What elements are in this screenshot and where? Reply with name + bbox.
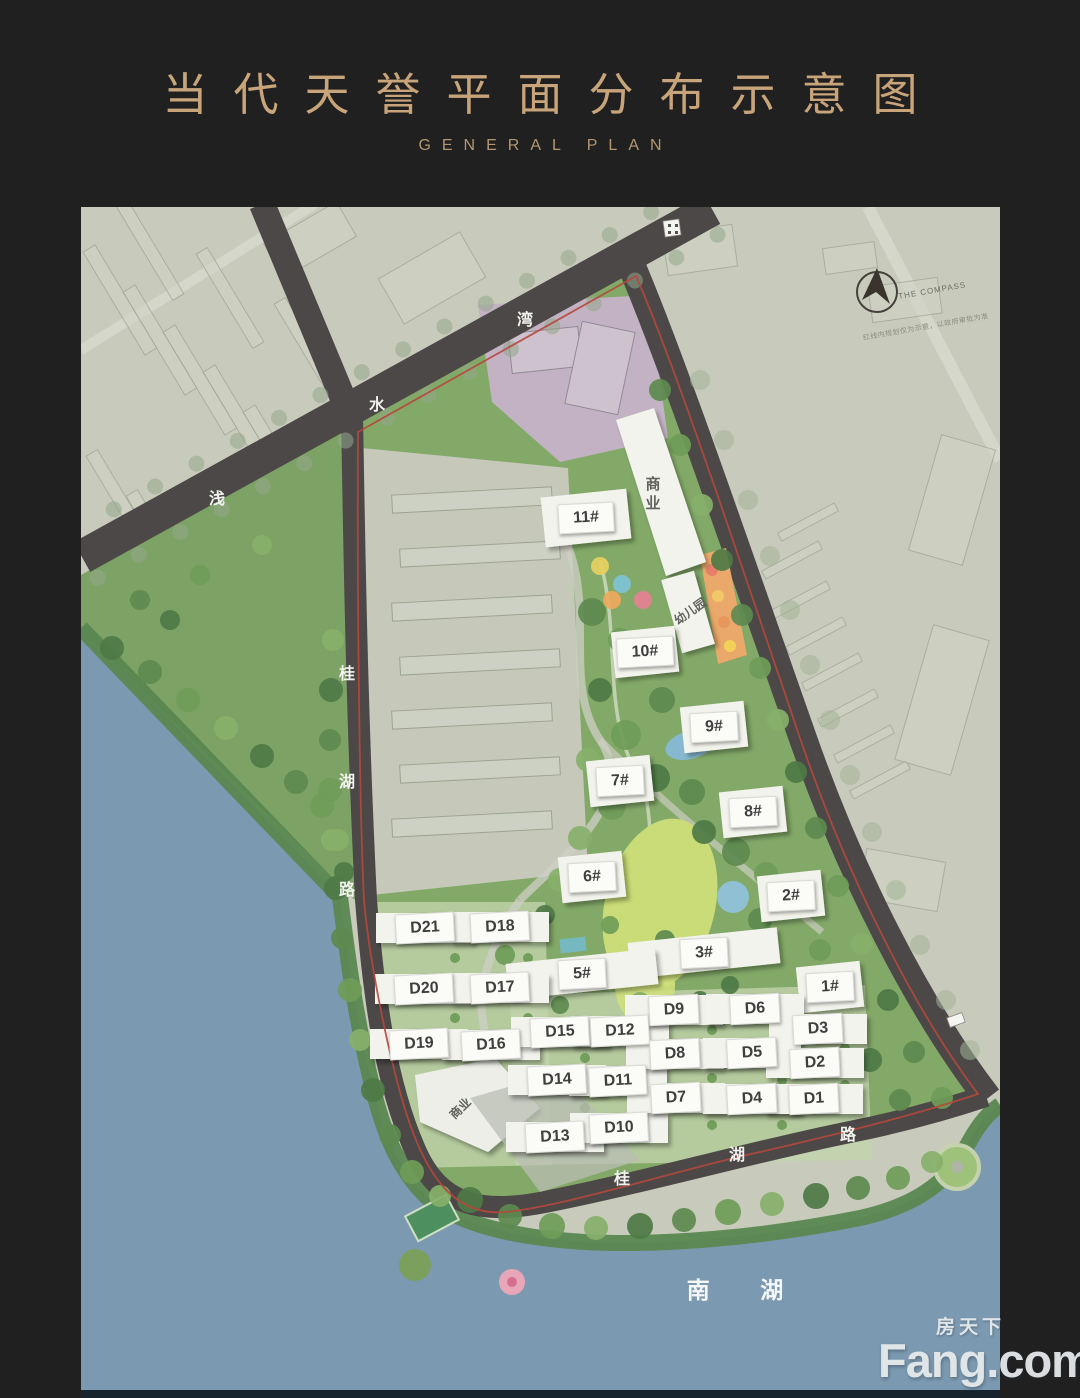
park-mound xyxy=(399,1249,431,1281)
kindergarten-yard-dot xyxy=(724,640,736,652)
playground xyxy=(603,591,621,609)
kindergarten-yard-dot xyxy=(712,590,724,602)
tree xyxy=(711,549,733,571)
building-footprint-8# xyxy=(719,786,787,838)
tree xyxy=(214,716,238,740)
tree xyxy=(429,1185,451,1207)
garden-tree xyxy=(707,1073,717,1083)
tree xyxy=(721,976,739,994)
tree xyxy=(252,535,272,555)
street-tree xyxy=(90,570,106,586)
street-tree xyxy=(354,364,370,380)
tree xyxy=(495,945,515,965)
road-sign-glyph xyxy=(675,224,678,227)
building-footprint-D18 xyxy=(451,912,549,942)
tree xyxy=(846,1176,870,1200)
tree xyxy=(649,379,671,401)
page-subtitle: GENERAL PLAN xyxy=(0,137,1080,155)
tree xyxy=(805,817,827,839)
garden-tree xyxy=(707,1120,717,1130)
street-tree xyxy=(436,318,452,334)
tree xyxy=(349,1029,371,1051)
tree xyxy=(100,636,124,660)
street-tree xyxy=(147,479,163,495)
tree xyxy=(310,794,334,818)
tree-pale xyxy=(936,990,956,1010)
tree xyxy=(669,434,691,456)
tree xyxy=(322,629,344,651)
tree-pale xyxy=(714,430,734,450)
tree-pale xyxy=(840,765,860,785)
street-tree xyxy=(710,227,726,243)
tree xyxy=(691,494,713,516)
garden-tree xyxy=(707,1025,717,1035)
tree xyxy=(250,744,274,768)
playground xyxy=(591,557,609,575)
garden-tree xyxy=(450,1013,460,1023)
street-tree xyxy=(338,433,354,449)
street-tree xyxy=(296,455,312,471)
building-footprint-9# xyxy=(680,701,748,753)
tree xyxy=(749,657,771,679)
tree xyxy=(672,1208,696,1232)
tree xyxy=(130,590,150,610)
tree xyxy=(379,1124,401,1146)
header: 当代天誉平面分布示意图 GENERAL PLAN xyxy=(0,0,1080,155)
tree xyxy=(338,978,362,1002)
street-tree xyxy=(255,478,271,494)
tree-pale xyxy=(800,655,820,675)
tree-pale xyxy=(760,546,780,566)
street-tree xyxy=(519,273,535,289)
street-tree xyxy=(172,524,188,540)
pond xyxy=(717,881,749,913)
tree xyxy=(889,1089,911,1111)
fang-watermark-en: Fang.com xyxy=(878,1333,1078,1388)
road-sign-glyph xyxy=(668,224,671,227)
street-tree xyxy=(395,341,411,357)
tree xyxy=(731,604,753,626)
tree-pale xyxy=(690,370,710,390)
page-title: 当代天誉平面分布示意图 xyxy=(0,0,1080,123)
street-tree xyxy=(188,456,204,472)
tree xyxy=(611,720,641,750)
map-bottom-edge xyxy=(81,1390,1000,1398)
road-sign-glyph xyxy=(675,231,678,234)
garden-tree xyxy=(777,1120,787,1130)
street-tree xyxy=(230,433,246,449)
tree xyxy=(319,729,341,751)
water-feature xyxy=(559,937,586,954)
tree xyxy=(903,1041,925,1063)
street-tree xyxy=(602,227,618,243)
tree xyxy=(679,779,705,805)
tree xyxy=(190,565,210,585)
street-tree xyxy=(560,250,576,266)
building-footprint-7# xyxy=(586,755,654,807)
tree-pale xyxy=(862,822,882,842)
tree-pale xyxy=(910,935,930,955)
garden-tree xyxy=(580,1053,590,1063)
kindergarten-yard-dot xyxy=(718,616,730,628)
tree xyxy=(722,838,750,866)
tree-pale xyxy=(960,1040,980,1060)
tree xyxy=(767,709,789,731)
building-footprint-1# xyxy=(796,961,864,1013)
building-footprint-D10 xyxy=(570,1113,668,1143)
street-tree xyxy=(312,387,328,403)
playground xyxy=(634,591,652,609)
tree xyxy=(877,989,899,1011)
street-tree xyxy=(478,296,494,312)
tree xyxy=(692,820,716,844)
playground xyxy=(613,575,631,593)
map-graphics xyxy=(81,207,1000,1398)
garden-tree xyxy=(450,953,460,963)
building-footprint-10# xyxy=(611,626,679,678)
fang-watermark: 房天下 Fang.com xyxy=(878,1312,1078,1388)
building-footprint-D2 xyxy=(766,1048,864,1078)
building-footprint-D17 xyxy=(451,973,549,1003)
tree xyxy=(649,687,675,713)
round-plaza-core xyxy=(951,1161,963,1173)
tree-pale xyxy=(780,600,800,620)
tree xyxy=(361,1078,385,1102)
tree-pale xyxy=(820,710,840,730)
road-sign xyxy=(663,219,681,237)
tree xyxy=(176,688,200,712)
building-footprint-D1 xyxy=(765,1084,863,1114)
tree xyxy=(627,1213,653,1239)
street-tree xyxy=(668,250,684,266)
pink-garden-core xyxy=(507,1277,517,1287)
tree xyxy=(584,1216,608,1240)
tree xyxy=(551,996,569,1014)
site-plan-map xyxy=(81,207,1000,1398)
page-background: { "header": { "title": "当代天誉平面分布示意图", "s… xyxy=(0,0,1080,1398)
tree xyxy=(851,933,873,955)
tree xyxy=(334,862,354,882)
building-footprint-2# xyxy=(757,870,825,922)
tree xyxy=(760,1192,784,1216)
building-footprint-11# xyxy=(541,489,632,548)
tree xyxy=(331,927,353,949)
building-footprint-6# xyxy=(558,851,626,903)
tree xyxy=(568,826,592,850)
tree xyxy=(498,1204,522,1228)
tree xyxy=(578,598,606,626)
tree xyxy=(601,916,619,934)
tree xyxy=(785,761,807,783)
street-tree xyxy=(271,410,287,426)
street-tree xyxy=(214,501,230,517)
tree xyxy=(160,610,180,630)
tree xyxy=(138,660,162,684)
tree-pale xyxy=(738,490,758,510)
tree xyxy=(400,1160,424,1184)
tree xyxy=(809,939,831,961)
tree xyxy=(827,875,849,897)
tree xyxy=(588,678,612,702)
tree xyxy=(715,1199,741,1225)
tree xyxy=(284,770,308,794)
tree xyxy=(803,1183,829,1209)
tree xyxy=(327,829,349,851)
tree xyxy=(921,1151,943,1173)
road-sign-glyph xyxy=(668,231,671,234)
street-tree xyxy=(106,501,122,517)
tree xyxy=(886,1166,910,1190)
tree xyxy=(539,1213,565,1239)
tree-pale xyxy=(886,880,906,900)
street-tree xyxy=(131,547,147,563)
tree xyxy=(319,678,343,702)
